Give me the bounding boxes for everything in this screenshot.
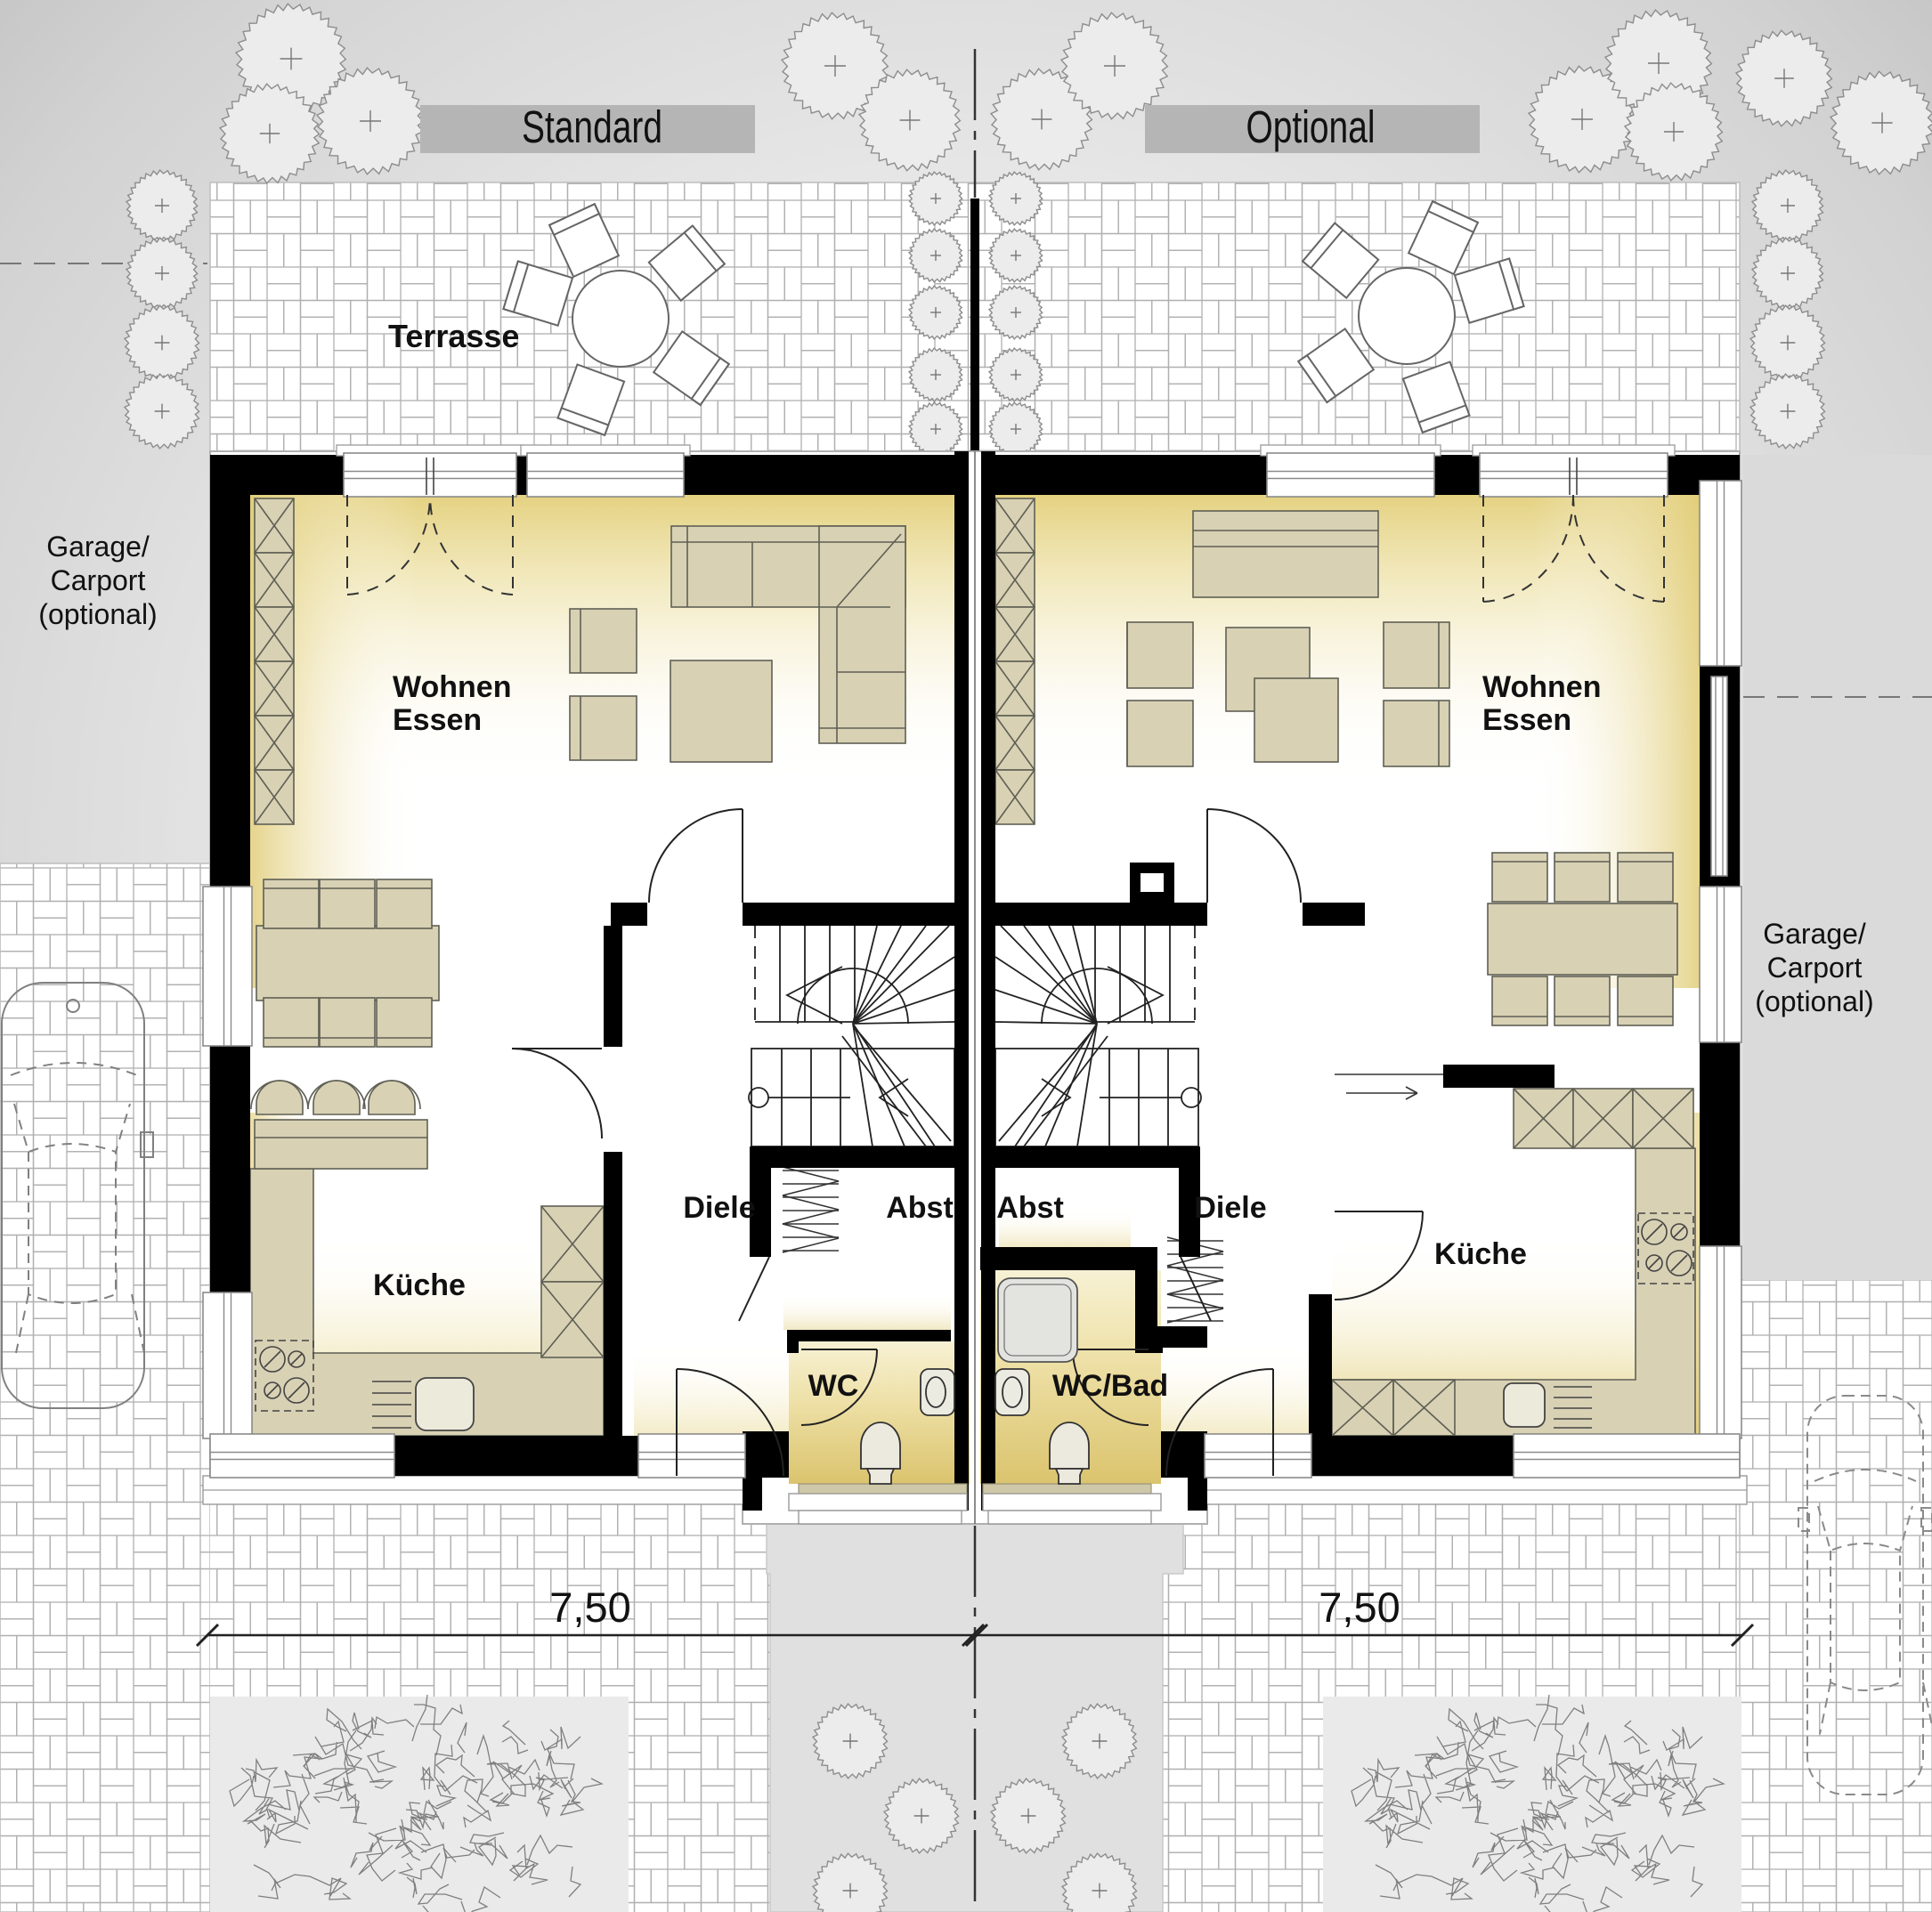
svg-text:Küche: Küche: [1434, 1237, 1527, 1271]
svg-text:Garage/: Garage/: [1763, 918, 1866, 950]
svg-text:Carport: Carport: [1767, 952, 1863, 984]
svg-text:Diele: Diele: [1194, 1191, 1266, 1225]
svg-text:Küche: Küche: [373, 1268, 466, 1302]
svg-text:7,50: 7,50: [549, 1584, 630, 1631]
svg-text:(optional): (optional): [38, 598, 157, 630]
svg-text:Abst: Abst: [996, 1191, 1064, 1225]
svg-text:Essen: Essen: [393, 703, 482, 737]
svg-text:Standard: Standard: [522, 101, 662, 152]
svg-text:(optional): (optional): [1755, 985, 1873, 1017]
svg-text:Carport: Carport: [51, 564, 146, 596]
svg-text:Essen: Essen: [1482, 703, 1571, 737]
svg-text:Abst: Abst: [886, 1191, 954, 1225]
svg-text:Optional: Optional: [1246, 101, 1376, 152]
svg-text:7,50: 7,50: [1319, 1584, 1400, 1631]
svg-text:Wohnen: Wohnen: [1482, 670, 1601, 704]
svg-text:Garage/: Garage/: [46, 531, 150, 563]
svg-text:Wohnen: Wohnen: [393, 670, 511, 704]
svg-text:Terrasse: Terrasse: [388, 318, 519, 354]
svg-text:WC/Bad: WC/Bad: [1052, 1369, 1168, 1403]
svg-text:Diele: Diele: [683, 1191, 755, 1225]
svg-text:WC: WC: [808, 1369, 859, 1403]
